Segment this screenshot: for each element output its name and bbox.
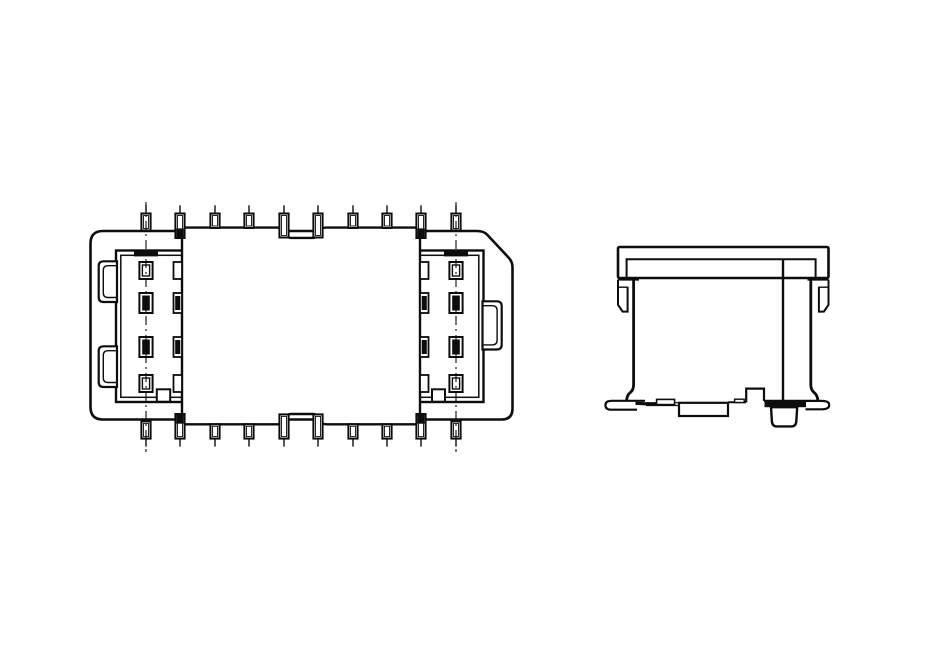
pin-bottom-6 — [313, 414, 322, 438]
center-standoff — [679, 403, 728, 416]
pin-bottom-dark-9 — [418, 414, 425, 423]
left-bump-bottom — [99, 346, 117, 387]
connector-technical-drawing — [0, 0, 935, 648]
side-view — [605, 247, 829, 426]
technical-drawing-canvas — [0, 0, 935, 648]
side-cap — [618, 247, 829, 278]
edge-pad — [174, 375, 183, 392]
edge-pad-fill — [422, 296, 427, 310]
base-bump — [735, 399, 745, 402]
edge-pad — [174, 262, 183, 279]
mounting-peg — [771, 407, 797, 426]
body-wall-right — [811, 280, 818, 401]
bottom-tab-right — [432, 389, 445, 401]
right-bump — [483, 301, 502, 349]
edge-pad-fill — [175, 296, 180, 310]
bottom-tab-left — [157, 389, 170, 401]
pin-top-6 — [313, 214, 322, 238]
center-cover — [182, 228, 420, 425]
top-view — [91, 202, 513, 452]
pin-bottom-5 — [279, 414, 288, 438]
latch-left — [618, 280, 628, 312]
small-block — [657, 399, 675, 404]
pin-top-5 — [279, 214, 288, 238]
foot-left-wedge — [636, 403, 658, 404]
edge-pad — [420, 375, 429, 392]
left-bump-top — [99, 261, 117, 302]
pin-bottom-dark-2 — [177, 414, 184, 423]
pin-top-dark-9 — [418, 228, 425, 237]
pin-top-dark-2 — [177, 228, 184, 237]
latch-right — [819, 280, 829, 312]
edge-pad — [420, 262, 429, 279]
edge-pad-fill — [422, 340, 427, 354]
edge-pad-fill — [175, 340, 180, 354]
step-notch — [746, 389, 764, 403]
